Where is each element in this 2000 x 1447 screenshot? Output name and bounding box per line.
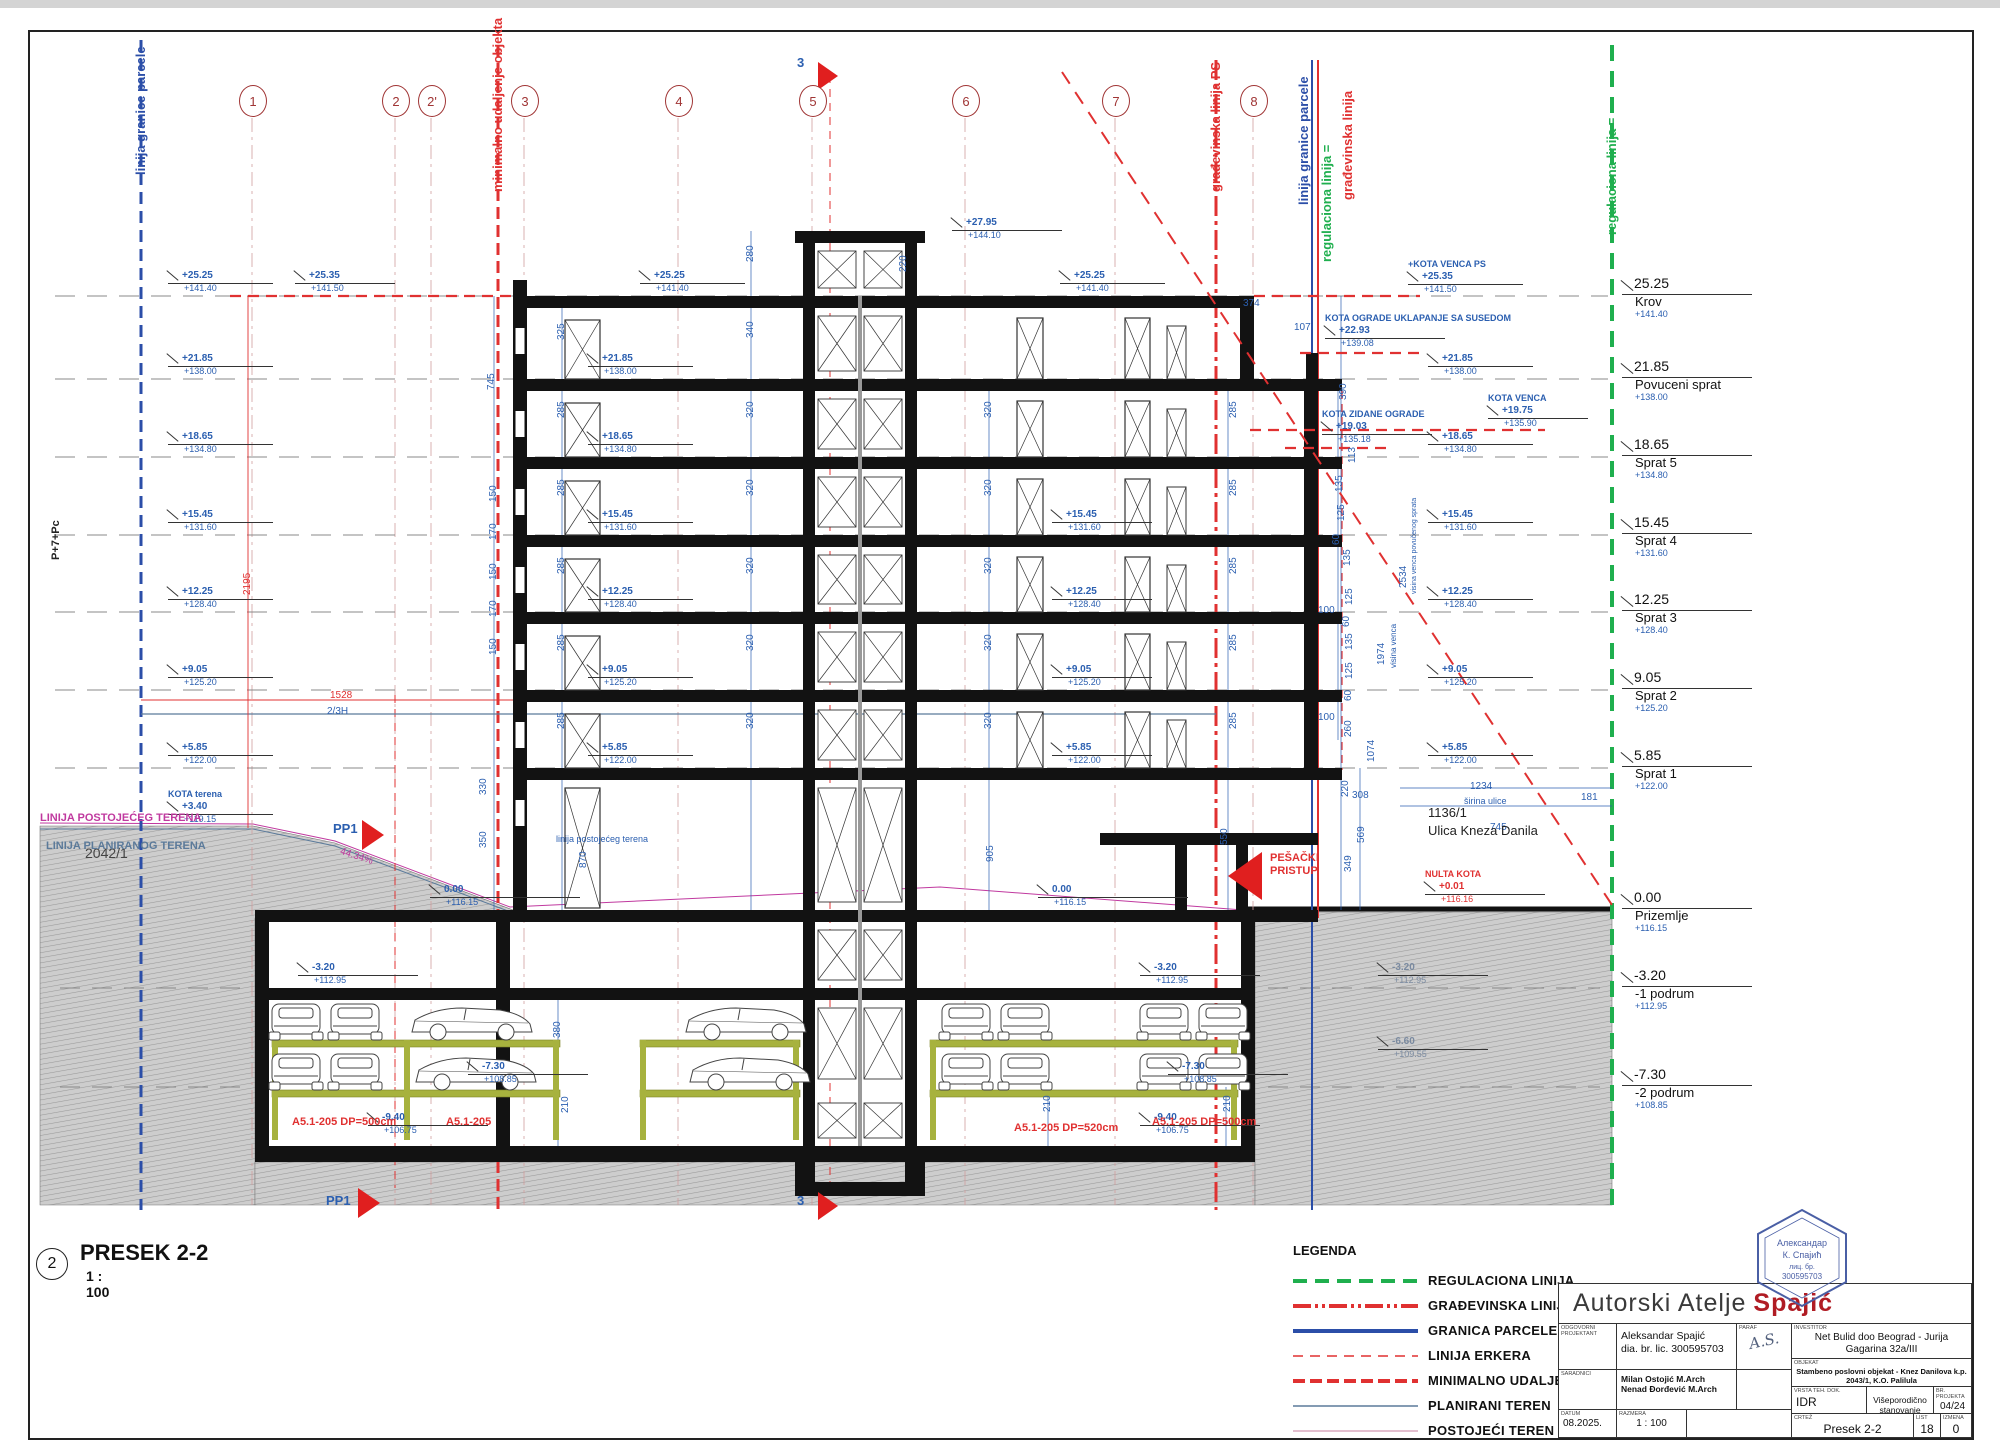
car-side-icon bbox=[690, 1058, 810, 1090]
car-front-icon bbox=[939, 1054, 993, 1090]
label-razmera: RAZMERA bbox=[1617, 1410, 1686, 1418]
elevation-flag: +9.05+125.20 bbox=[1428, 664, 1533, 688]
grid-bubble: 8 bbox=[1240, 85, 1268, 117]
dimension-text: 320 bbox=[983, 557, 994, 574]
dimension-text: 125 bbox=[1336, 504, 1347, 521]
level-label: 25.25Krov+141.40 bbox=[1622, 276, 1752, 319]
section-arrow-icon bbox=[362, 820, 384, 850]
svg-text:лиц. бр.: лиц. бр. bbox=[1789, 1263, 1815, 1271]
elevation-flag: +25.25+141.40 bbox=[168, 270, 273, 294]
elevation-flag: KOTA OGRADE UKLAPANJE SA SUSEDOM+22.93+1… bbox=[1325, 314, 1445, 349]
dimension-text: 2534 bbox=[1398, 566, 1409, 588]
car-front-icon bbox=[328, 1004, 382, 1040]
elevation-flag: -7.30+108.85 bbox=[1168, 1061, 1288, 1085]
annotation-text: 1136/1 bbox=[1428, 806, 1467, 821]
annotation-text: A5.1-205 DP=520cm bbox=[1014, 1122, 1118, 1135]
dimension-text: 320 bbox=[745, 634, 756, 651]
annotation-text: linija postojećeg terena bbox=[556, 834, 648, 844]
elevation-flag: +15.45+131.60 bbox=[1052, 509, 1152, 533]
label-investitor: INVESTITOR bbox=[1792, 1324, 1971, 1332]
dimension-text: 550 bbox=[1219, 828, 1230, 845]
section-arrow-icon bbox=[818, 62, 838, 90]
car-front-icon bbox=[998, 1004, 1052, 1040]
elevation-flag: +KOTA VENCA PS+25.35+141.50 bbox=[1408, 260, 1523, 295]
legend-title: LEGENDA bbox=[1293, 1243, 1723, 1258]
legend-line-sample bbox=[1293, 1326, 1418, 1336]
elevation-flag: -3.20+112.95 bbox=[298, 962, 418, 986]
dimension-text: 210 bbox=[560, 1096, 571, 1113]
dimension-text: 285 bbox=[556, 557, 567, 574]
svg-text:Александар: Александар bbox=[1777, 1238, 1827, 1248]
grid-bubble: 6 bbox=[952, 85, 980, 117]
label-datum: DATUM bbox=[1559, 1410, 1616, 1418]
dimension-text: 870 bbox=[578, 851, 589, 868]
elevation-flag: 0.00+116.15 bbox=[1038, 884, 1188, 908]
dimension-text: 2/3H bbox=[327, 706, 348, 717]
dimension-text: 569 bbox=[1356, 826, 1367, 843]
dimension-text: 285 bbox=[1228, 634, 1239, 651]
odgovorni-projektant: Aleksandar Spajić dia. br. lic. 30059570… bbox=[1617, 1324, 1736, 1355]
legend-line-sample bbox=[1293, 1301, 1418, 1311]
elevation-flag: +9.05+125.20 bbox=[1052, 664, 1152, 688]
dimension-text: 285 bbox=[1228, 401, 1239, 418]
studio-name-black: Autorski Atelje bbox=[1573, 1289, 1746, 1318]
dimension-text: 135 bbox=[1344, 633, 1355, 650]
grid-bubble: 4 bbox=[665, 85, 693, 117]
dimension-text: 181 bbox=[1581, 792, 1598, 803]
grid-bubble: 5 bbox=[799, 85, 827, 117]
reference-line-label: regulaciona linija = bbox=[1604, 118, 1619, 235]
reference-line-label: regulaciona linija = bbox=[1319, 145, 1334, 262]
elevation-flag: KOTA VENCA+19.75+135.90 bbox=[1488, 394, 1588, 429]
dimension-text: 135 bbox=[1342, 549, 1353, 566]
car-front-icon bbox=[328, 1054, 382, 1090]
svg-text:К. Спајић: К. Спајић bbox=[1783, 1250, 1822, 1260]
list-number: 18 bbox=[1914, 1422, 1940, 1436]
dimension-text: 320 bbox=[745, 557, 756, 574]
dimension-text: 125 bbox=[1344, 588, 1355, 605]
reference-line-label: građevinska linija bbox=[1340, 91, 1355, 200]
dimension-text: 320 bbox=[745, 712, 756, 729]
dimension-text: 320 bbox=[983, 634, 994, 651]
dimension-text: 325 bbox=[556, 323, 567, 340]
dimension-text: 60 bbox=[1341, 616, 1352, 627]
dimension-text: 220 bbox=[1340, 780, 1351, 797]
car-front-icon bbox=[269, 1004, 323, 1040]
car-front-icon bbox=[1137, 1004, 1191, 1040]
elevation-flag: +5.85+122.00 bbox=[588, 742, 693, 766]
elevation-flag: +25.35+141.50 bbox=[295, 270, 395, 294]
level-label: -3.20-1 podrum+112.95 bbox=[1622, 968, 1752, 1011]
elevation-flag: +21.85+138.00 bbox=[168, 353, 273, 377]
dimension-text: 320 bbox=[745, 401, 756, 418]
dimension-text: 285 bbox=[556, 401, 567, 418]
label-izmena: IZMENA bbox=[1941, 1414, 1971, 1422]
legend-line-sample bbox=[1293, 1276, 1418, 1286]
dimension-text: 260 bbox=[1343, 720, 1354, 737]
elevation-flag: +12.25+128.40 bbox=[588, 586, 693, 610]
level-label: 0.00Prizemlje+116.15 bbox=[1622, 890, 1752, 933]
elevation-flag: +25.25+141.40 bbox=[1060, 270, 1165, 294]
dimension-text: 60 bbox=[1343, 690, 1354, 701]
annotation-text: LINIJA POSTOJEĆEG TERENA bbox=[40, 812, 201, 825]
dimension-text: 308 bbox=[1352, 790, 1369, 801]
elevation-flag: +5.85+122.00 bbox=[1428, 742, 1533, 766]
dimension-text: 210 bbox=[1042, 1095, 1053, 1112]
reference-line-label: linija granice parcele bbox=[1296, 76, 1311, 205]
level-label: 12.25Sprat 3+128.40 bbox=[1622, 592, 1752, 635]
dimension-text: širina ulice bbox=[1464, 796, 1507, 806]
reference-line-label: minimalno udaljenje objekta bbox=[490, 18, 505, 192]
dimension-text: 285 bbox=[1228, 712, 1239, 729]
dimension-text: 1974 bbox=[1376, 643, 1387, 665]
dimension-text: 285 bbox=[556, 712, 567, 729]
annotation-text: 3 bbox=[797, 1194, 804, 1209]
level-label: -7.30-2 podrum+108.85 bbox=[1622, 1067, 1752, 1110]
level-label: 9.05Sprat 2+125.20 bbox=[1622, 670, 1752, 713]
dimension-text: 320 bbox=[745, 479, 756, 496]
elevation-flag: +12.25+128.40 bbox=[1052, 586, 1152, 610]
elevation-flag: +5.85+122.00 bbox=[168, 742, 273, 766]
dimension-text: 340 bbox=[745, 321, 756, 338]
dimension-text: 150 bbox=[488, 563, 499, 580]
elevation-flag: +15.45+131.60 bbox=[1428, 509, 1533, 533]
dimension-text: 380 bbox=[552, 1021, 563, 1038]
legend-item-label: LINIJA ERKERA bbox=[1428, 1348, 1531, 1363]
dimension-text: 390 bbox=[1338, 383, 1349, 400]
section-title-text: PRESEK 2-2 bbox=[80, 1240, 208, 1266]
grid-bubble: 1 bbox=[239, 85, 267, 117]
dimension-text: 330 bbox=[478, 778, 489, 795]
legend-item-label: GRANICA PARCELE bbox=[1428, 1323, 1557, 1338]
elevation-flag: +15.45+131.60 bbox=[588, 509, 693, 533]
car-front-icon bbox=[998, 1054, 1052, 1090]
dimension-text: 100 bbox=[1318, 605, 1335, 616]
dimension-text: 113 bbox=[1347, 447, 1358, 463]
investitor: Net Bulid doo Beograd - Jurija Gagarina … bbox=[1792, 1332, 1971, 1356]
elevation-flag: 0.00+116.15 bbox=[430, 884, 580, 908]
dimension-text: 745 bbox=[486, 373, 497, 390]
elevation-flag: +15.45+131.60 bbox=[168, 509, 273, 533]
annotation-text: Ulica Kneza Danila bbox=[1428, 824, 1538, 839]
annotation-text: 3 bbox=[797, 56, 804, 71]
dimension-text: 320 bbox=[983, 401, 994, 418]
dimension-text: visina venca povučenog sprata bbox=[1411, 498, 1418, 594]
level-label: 15.45Sprat 4+131.60 bbox=[1622, 515, 1752, 558]
car-front-icon bbox=[1196, 1004, 1250, 1040]
br-projekta: 04/24 bbox=[1934, 1401, 1971, 1413]
label-objekat: OBJEKAT bbox=[1792, 1359, 1971, 1367]
label-crtez: CRTEŽ bbox=[1792, 1414, 1913, 1422]
engineer-stamp-icon: Александар К. Спајић лиц. бр. 300595703 bbox=[1742, 1206, 1862, 1310]
section-scale: 1 : 100 bbox=[86, 1268, 109, 1300]
dimension-text: 1074 bbox=[1366, 740, 1377, 762]
annotation-text: PP1 bbox=[333, 822, 358, 837]
izmena: 0 bbox=[1941, 1422, 1971, 1436]
grid-bubble: 7 bbox=[1102, 85, 1130, 117]
dimension-text: 285 bbox=[556, 479, 567, 496]
dimension-text: 170 bbox=[488, 600, 499, 617]
saradnici: Milan Ostojić M.Arch Nenad Đorđević M.Ar… bbox=[1617, 1370, 1736, 1394]
crtez: Presek 2-2 bbox=[1792, 1422, 1913, 1436]
dimension-text: 220 bbox=[898, 255, 909, 272]
legend-item-label: REGULACIONA LINIJA bbox=[1428, 1273, 1574, 1288]
elevation-flag: KOTA ZIDANE OGRADE+19.03+135.18 bbox=[1322, 410, 1432, 445]
elevation-flag: +21.85+138.00 bbox=[1428, 353, 1533, 377]
svg-text:300595703: 300595703 bbox=[1782, 1272, 1823, 1281]
dimension-text: 285 bbox=[1228, 557, 1239, 574]
car-side-icon bbox=[412, 1008, 532, 1040]
elevation-flag: -6.60+109.55 bbox=[1378, 1036, 1488, 1060]
namena: Višeporodično stanovanje bbox=[1867, 1387, 1933, 1414]
dimension-text: 170 bbox=[488, 523, 499, 540]
reference-line-label: linija granice parcele bbox=[133, 46, 148, 175]
label-saradnici: SARADNICI bbox=[1559, 1370, 1616, 1378]
grid-bubble: 3 bbox=[511, 85, 539, 117]
legend-line-sample bbox=[1293, 1351, 1418, 1361]
annotation-text: PP1 bbox=[326, 1194, 351, 1209]
annotation-text: A5.1-205 DP=500cm bbox=[292, 1116, 396, 1129]
elevation-flag: -7.30+108.85 bbox=[468, 1061, 588, 1085]
level-label: 21.85Povuceni sprat+138.00 bbox=[1622, 359, 1752, 402]
car-front-icon bbox=[269, 1054, 323, 1090]
elevation-flag: +21.85+138.00 bbox=[588, 353, 693, 377]
grid-bubble: 2' bbox=[418, 85, 446, 117]
elevation-flag: +9.05+125.20 bbox=[588, 664, 693, 688]
dimension-text: 349 bbox=[1343, 855, 1354, 872]
elevation-flag: +5.85+122.00 bbox=[1052, 742, 1152, 766]
elevation-flag: +18.65+134.80 bbox=[1428, 431, 1533, 455]
elevation-flag: +25.25+141.40 bbox=[640, 270, 745, 294]
dimension-text: 150 bbox=[488, 638, 499, 655]
razmera: 1 : 100 bbox=[1617, 1418, 1686, 1430]
vrsta-teh-dok: IDR bbox=[1792, 1395, 1866, 1409]
dimension-text: 374 bbox=[1243, 298, 1260, 309]
label-vrsta: VRSTA TEH. DOK. bbox=[1792, 1387, 1866, 1395]
elevation-flag: -3.20+112.95 bbox=[1140, 962, 1260, 986]
legend-line-sample bbox=[1293, 1426, 1418, 1436]
elevation-flag: NULTA KOTA+0.01+116.16 bbox=[1425, 870, 1545, 905]
elevation-flag: +18.65+134.80 bbox=[588, 431, 693, 455]
dimension-text: 320 bbox=[983, 479, 994, 496]
elevation-flag: +18.65+134.80 bbox=[168, 431, 273, 455]
legend-line-sample bbox=[1293, 1376, 1418, 1386]
dimension-text: 280 bbox=[745, 245, 756, 262]
dimension-text: 100 bbox=[1318, 712, 1335, 723]
drawing-sheet: 2 PRESEK 2-2 1 : 100 LEGENDA REGULACIONA… bbox=[0, 0, 2000, 1447]
annotation-text: A5.1-205 DP=500cm bbox=[1152, 1116, 1256, 1129]
dimension-text: 285 bbox=[1228, 479, 1239, 496]
elevation-flag: +9.05+125.20 bbox=[168, 664, 273, 688]
grid-bubble: 2 bbox=[382, 85, 410, 117]
dimension-text: visina venca bbox=[1389, 624, 1398, 668]
label-odgovorni: ODGOVORNI PROJEKTANT bbox=[1559, 1324, 1616, 1338]
dimension-text: 2195 bbox=[242, 573, 253, 595]
dimension-text: 1528 bbox=[330, 690, 352, 701]
dimension-text: 150 bbox=[488, 485, 499, 502]
elevation-flag: +12.25+128.40 bbox=[168, 586, 273, 610]
dimension-text: 107 bbox=[1294, 322, 1311, 333]
level-label: 5.85Sprat 1+122.00 bbox=[1622, 748, 1752, 791]
dimension-text: 125 bbox=[1344, 662, 1355, 679]
elevation-flag: -3.20+112.95 bbox=[1378, 962, 1488, 986]
dimension-text: 905 bbox=[985, 845, 996, 862]
dimension-text: 350 bbox=[478, 831, 489, 848]
dimension-text: 320 bbox=[983, 712, 994, 729]
legend-item-label: POSTOJEĆI TEREN bbox=[1428, 1423, 1554, 1438]
reference-line-label: građevinska linija PS bbox=[1208, 62, 1223, 192]
annotation-text: PEŠAČKI PRISTUP bbox=[1270, 852, 1319, 877]
section-number-bubble: 2 bbox=[36, 1248, 68, 1280]
legend-line-sample bbox=[1293, 1401, 1418, 1411]
objekat: Stambeno poslovni objekat - Knez Danilov… bbox=[1792, 1367, 1971, 1385]
annotation-text: P+7+Pc bbox=[50, 520, 63, 560]
label-br-projekta: BR. PROJEKTA bbox=[1934, 1387, 1971, 1401]
label-list: LIST bbox=[1914, 1414, 1940, 1422]
elevation-flag: +27.95+144.10 bbox=[952, 217, 1062, 241]
car-front-icon bbox=[939, 1004, 993, 1040]
dimension-text: 285 bbox=[556, 634, 567, 651]
dimension-text: 135 bbox=[1334, 475, 1345, 492]
elevation-flag: +12.25+128.40 bbox=[1428, 586, 1533, 610]
dimension-text: 1234 bbox=[1470, 781, 1492, 792]
dimension-text: 210 bbox=[1222, 1095, 1233, 1112]
legend-item-label: GRAĐEVINSKA LINIJA bbox=[1428, 1298, 1574, 1313]
datum: 08.2025. bbox=[1559, 1418, 1616, 1430]
level-label: 18.65Sprat 5+134.80 bbox=[1622, 437, 1752, 480]
car-side-icon bbox=[686, 1008, 806, 1040]
annotation-text: A5.1-205 bbox=[446, 1116, 491, 1129]
dimension-text: 60 bbox=[1331, 534, 1342, 545]
legend-item-label: PLANIRANI TEREN bbox=[1428, 1398, 1551, 1413]
annotation-text: LINIJA PLANIRANOG TERENA bbox=[46, 840, 206, 853]
